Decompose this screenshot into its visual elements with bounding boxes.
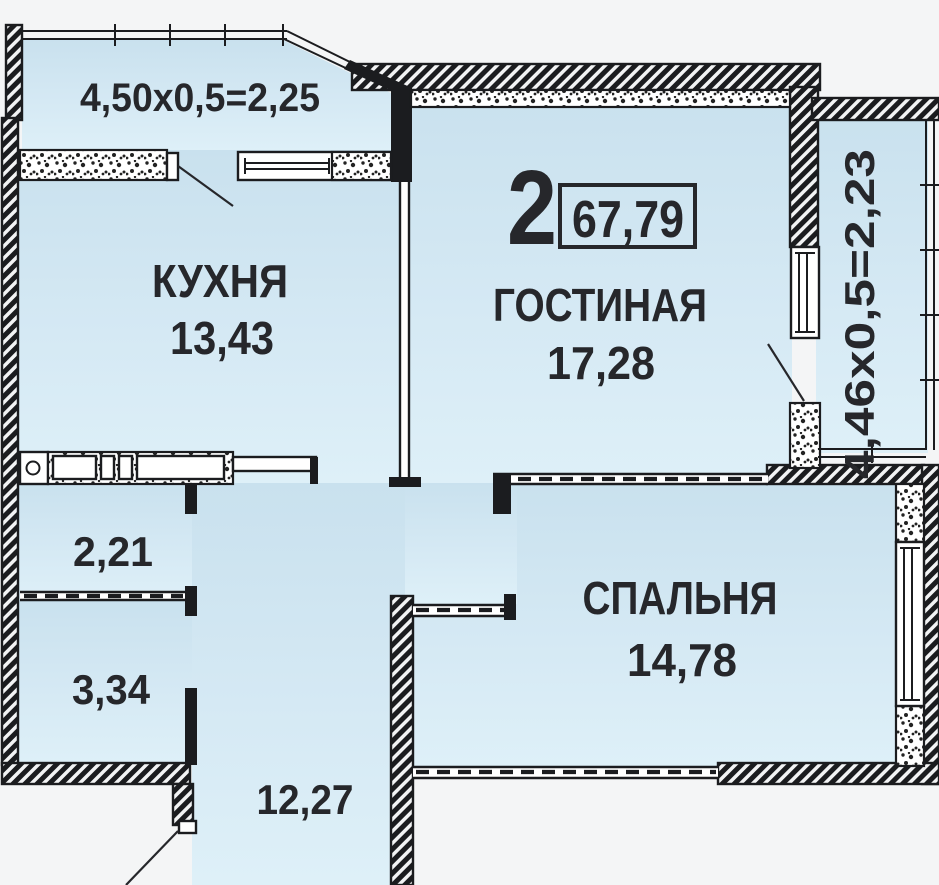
hallway-area: 2,21 — [73, 528, 153, 575]
rooms-count: 2 — [507, 149, 557, 267]
stipple-bedroom-window-top — [896, 484, 924, 542]
stipple-living-right — [790, 403, 820, 468]
room-corridor — [192, 483, 413, 885]
vent-shaft-icon — [20, 452, 48, 484]
balcony-top-dimensions: 4,50x0,5=2,25 — [80, 76, 320, 120]
partition-end-cap — [389, 477, 421, 487]
bedroom-name: СПАЛЬНЯ — [583, 572, 778, 624]
entrance-door — [126, 821, 196, 885]
wall-living-top — [352, 64, 820, 90]
floor-plan: 4,50x0,5=2,25 2 67,79 КУХНЯ 13,43 ГОСТИН… — [0, 0, 939, 885]
balcony-right-dimensions: 4,46x0,5=2,23 — [836, 149, 883, 479]
stipple-kitchen-window-left — [20, 150, 167, 180]
wall-left — [2, 118, 18, 765]
stipple-kitchen-window-right — [332, 152, 391, 180]
total-area: 67,79 — [572, 191, 684, 249]
bedroom-window — [896, 542, 924, 706]
bedroom-area: 14,78 — [627, 634, 737, 686]
entrance-door-jamb — [179, 821, 196, 833]
wall-balcony-kitchen-corner — [391, 88, 412, 182]
bedroom-door-jamb-bottom — [504, 594, 516, 620]
floor-plan-page: 4,50x0,5=2,25 2 67,79 КУХНЯ 13,43 ГОСТИН… — [0, 0, 939, 885]
wall-corridor-right — [391, 596, 413, 885]
bathroom-area: 3,34 — [72, 666, 151, 713]
wall-left-upper — [6, 25, 22, 120]
wall-balcony-right-top — [812, 98, 939, 120]
living-area: 17,28 — [547, 337, 655, 389]
bedroom-window-group — [896, 542, 924, 706]
corridor-area: 12,27 — [257, 776, 354, 823]
kitchen-area: 13,43 — [170, 312, 274, 364]
stipple-living-top-band — [411, 90, 790, 107]
wall-entrance-block — [173, 784, 193, 825]
kitchen-door-jamb — [167, 153, 178, 180]
living-name: ГОСТИНАЯ — [493, 279, 707, 331]
kitchen-door-jamb-tick — [310, 457, 318, 484]
wall-bottom-left — [2, 763, 190, 784]
hallway-bathroom-wall — [20, 592, 185, 601]
stipple-bedroom-window-bottom — [896, 706, 924, 766]
bedroom-door-jamb-top — [493, 473, 511, 514]
bedroom-bottom-thin-wall — [413, 766, 718, 779]
living-window — [791, 247, 819, 338]
kitchen-name: КУХНЯ — [152, 255, 288, 307]
kitchen-opening-wall — [233, 457, 316, 471]
entrance-door-swing — [126, 831, 178, 885]
